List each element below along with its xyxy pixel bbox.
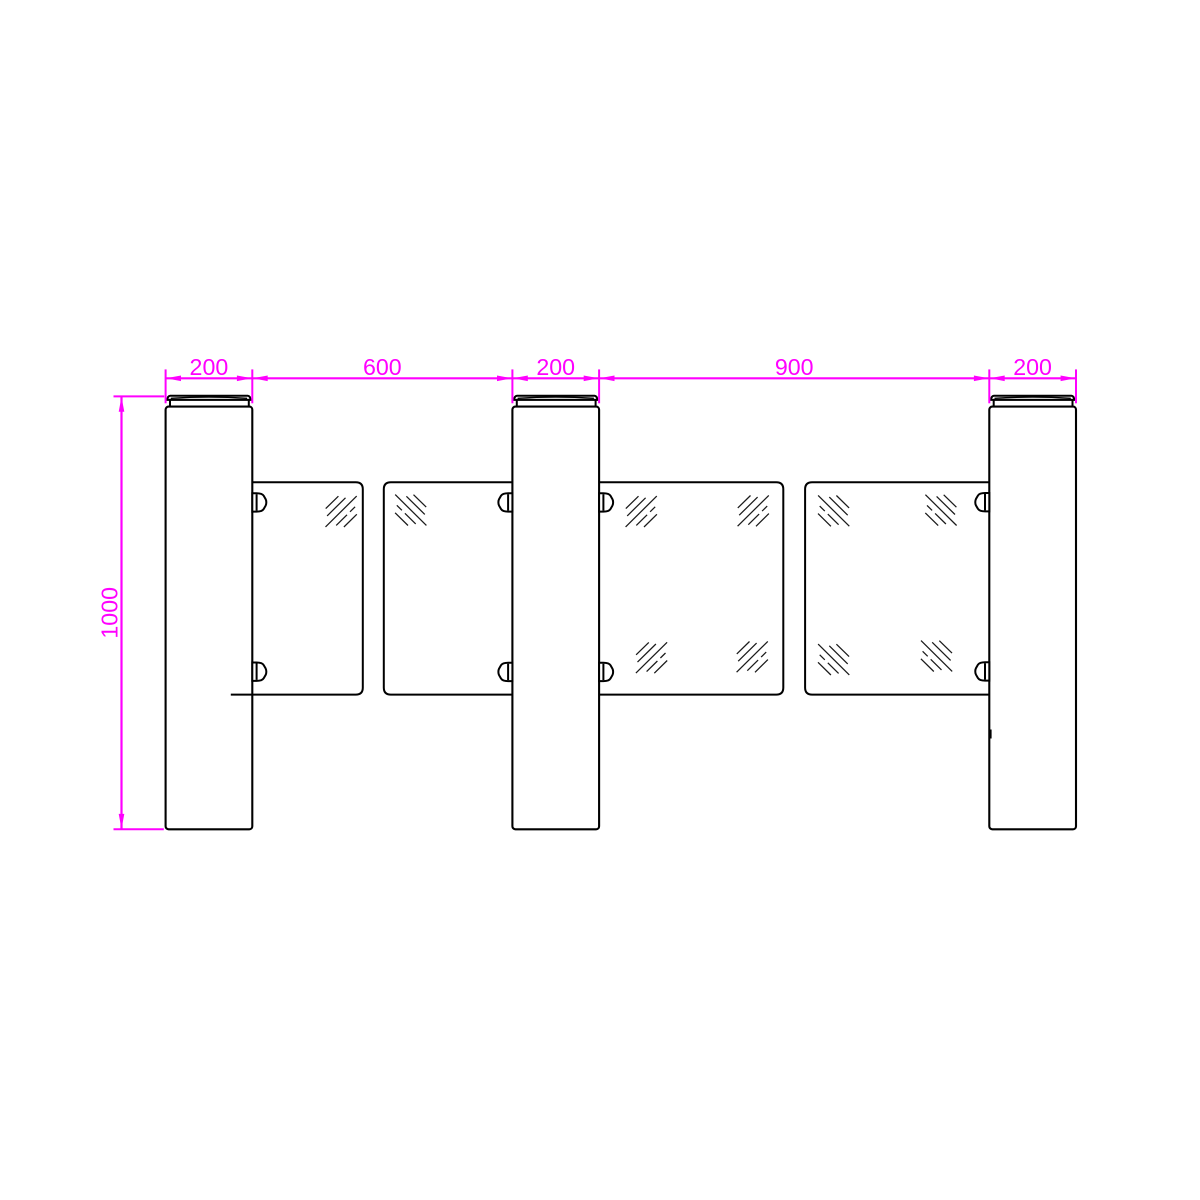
svg-text:200: 200 [1013,354,1052,380]
svg-text:200: 200 [190,354,229,380]
svg-text:1000: 1000 [97,587,123,639]
svg-text:200: 200 [536,354,575,380]
svg-text:600: 600 [363,354,402,380]
svg-text:900: 900 [775,354,814,380]
